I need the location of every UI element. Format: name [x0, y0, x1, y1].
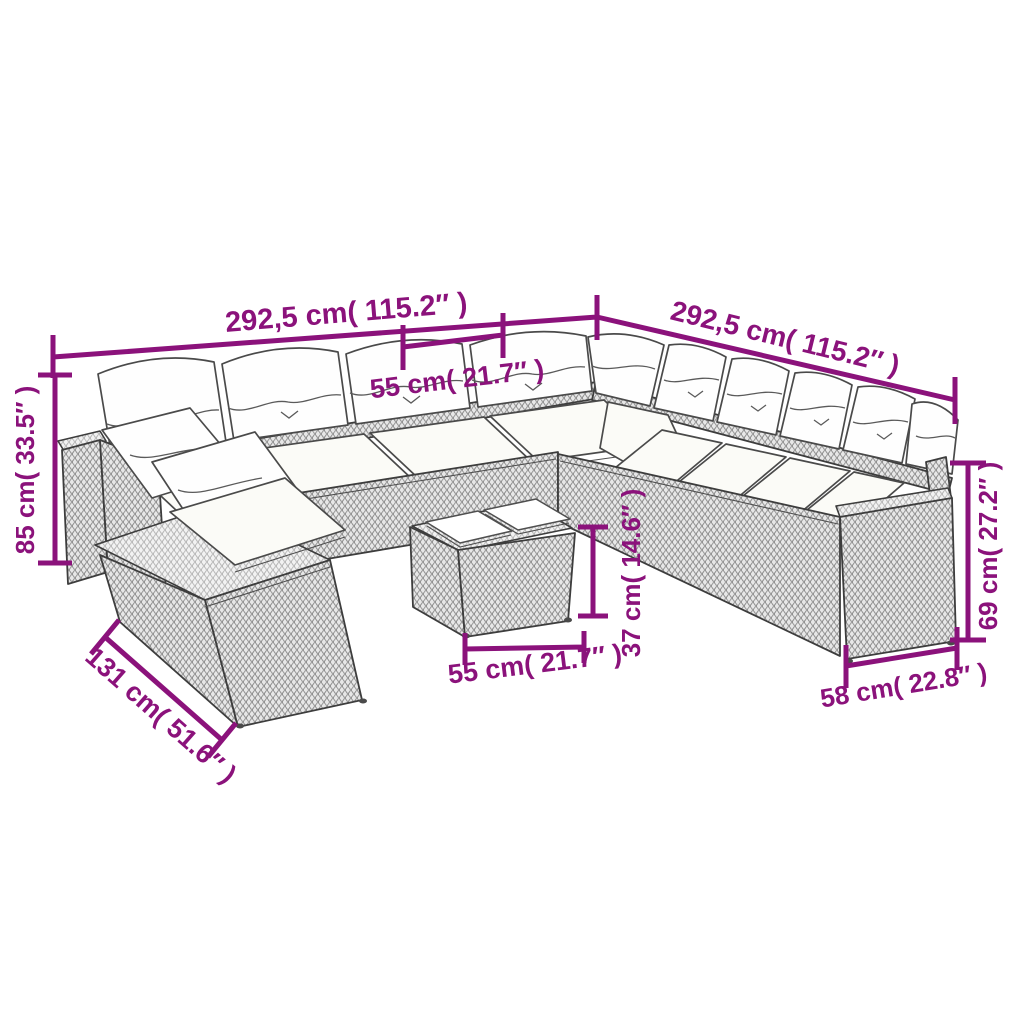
sofa-set-diagram-canvas: 292,5 cm( 115.2″ ) 292,5 cm( 115.2″ ) 55… — [0, 0, 1024, 1024]
dimension-table-width: 55 cm( 21.7″ ) — [446, 631, 623, 690]
dimension-armrest-height: 69 cm( 27.2″ ) — [950, 462, 1003, 640]
dimension-label-overall-height: 85 cm( 33.5″ ) — [10, 386, 40, 555]
coffee-table — [410, 499, 575, 637]
dimension-label-armrest-height: 69 cm( 27.2″ ) — [973, 462, 1003, 631]
dimension-label-table-height: 37 cm( 14.6″ ) — [616, 489, 646, 658]
product-dimension-diagram: 292,5 cm( 115.2″ ) 292,5 cm( 115.2″ ) 55… — [0, 0, 1024, 1024]
